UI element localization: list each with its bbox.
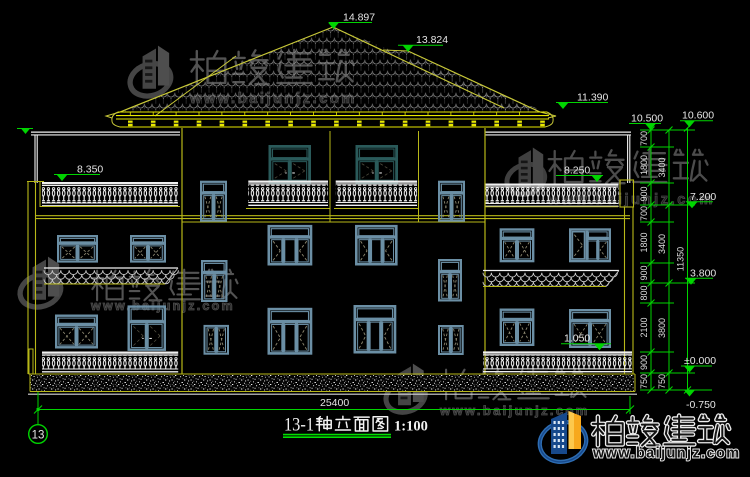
svg-text:14.897: 14.897 xyxy=(343,12,375,24)
svg-text:900: 900 xyxy=(639,186,649,201)
svg-text:11350: 11350 xyxy=(676,247,686,271)
svg-text:13: 13 xyxy=(32,430,45,442)
svg-text:13.824: 13.824 xyxy=(416,34,448,46)
svg-text:3400: 3400 xyxy=(657,234,667,254)
svg-text:750: 750 xyxy=(639,374,649,389)
svg-text:3.800: 3.800 xyxy=(690,268,716,280)
svg-text:11.390: 11.390 xyxy=(577,92,608,104)
svg-text:3800: 3800 xyxy=(657,318,667,338)
svg-text:-0.750: -0.750 xyxy=(686,399,716,411)
svg-text:800: 800 xyxy=(639,285,649,300)
svg-text:1.050: 1.050 xyxy=(564,333,590,345)
svg-text:25400: 25400 xyxy=(320,397,349,409)
svg-text:3400: 3400 xyxy=(657,157,667,177)
svg-text:900: 900 xyxy=(639,355,649,370)
svg-text:8.350: 8.350 xyxy=(77,164,103,176)
svg-text:±0.000: ±0.000 xyxy=(684,355,716,367)
svg-text:700: 700 xyxy=(639,206,649,221)
svg-text:2100: 2100 xyxy=(639,317,649,337)
svg-text:700: 700 xyxy=(639,131,649,146)
svg-text:www.baijunjz.com: www.baijunjz.com xyxy=(592,446,741,462)
svg-text:10.500: 10.500 xyxy=(631,113,663,125)
svg-text:8.250: 8.250 xyxy=(564,165,590,177)
svg-text:www.baijunjz.com: www.baijunjz.com xyxy=(439,403,590,418)
svg-text:1800: 1800 xyxy=(639,232,649,252)
svg-text:1800: 1800 xyxy=(639,155,649,175)
svg-text:13-1: 13-1 xyxy=(284,415,314,436)
svg-text:10.600: 10.600 xyxy=(682,110,714,122)
svg-text:7.200: 7.200 xyxy=(690,191,716,203)
svg-text:900: 900 xyxy=(639,265,649,280)
svg-text:750: 750 xyxy=(657,374,667,389)
svg-text:1:100: 1:100 xyxy=(394,419,428,435)
